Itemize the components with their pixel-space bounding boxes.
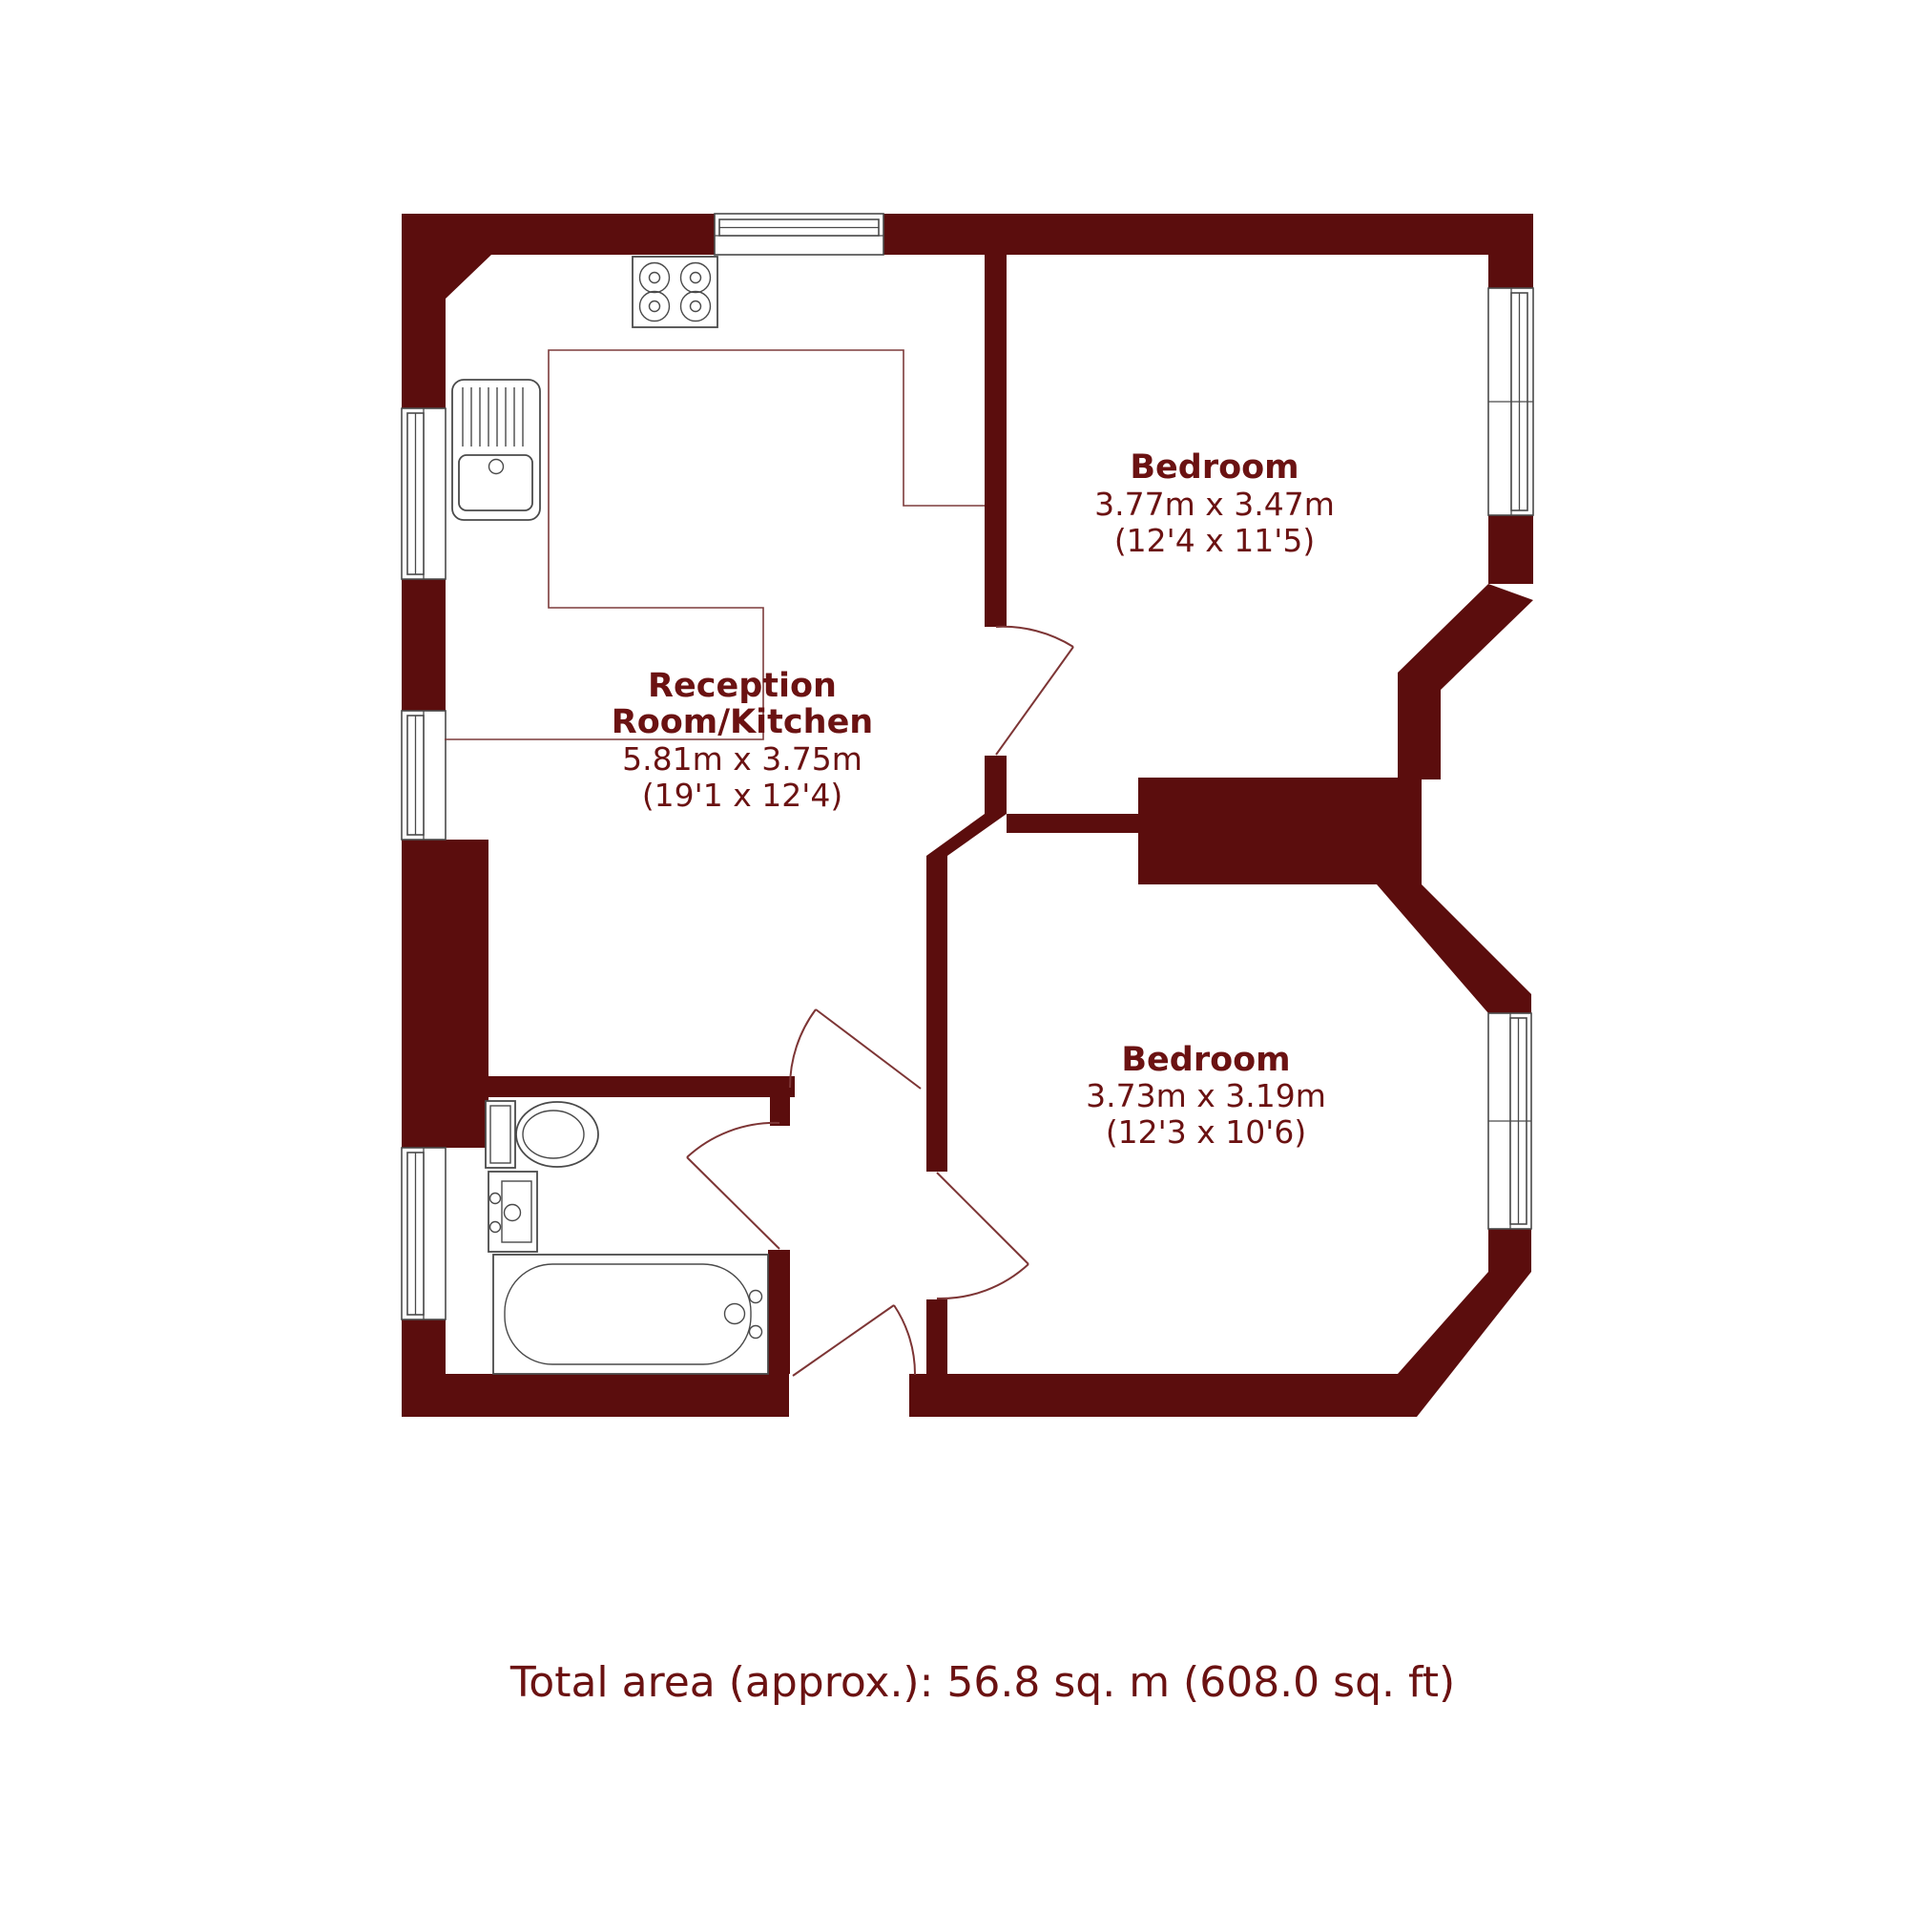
window-icon-left-b (402, 711, 446, 840)
room-label-reception-imperial: (19'1 x 12'4) (642, 777, 842, 814)
wall-layer (402, 214, 1533, 1417)
floorplan-svg: Bedroom 3.77m x 3.47m (12'4 x 11'5) Rece… (0, 0, 1932, 1932)
window-icon-left-c (402, 1148, 446, 1319)
door-bathroom (687, 1123, 779, 1249)
room-label-reception-name2: Room/Kitchen (612, 703, 873, 741)
toilet-icon (486, 1101, 598, 1168)
room-label-bedroom-bottom-imperial: (12'3 x 10'6) (1106, 1113, 1306, 1151)
room-label-reception-name1: Reception (648, 667, 837, 705)
window-icon-bay-top (1488, 288, 1533, 515)
room-label-bedroom-top-metric: 3.77m x 3.47m (1094, 486, 1335, 523)
room-label-bedroom-top-imperial: (12'4 x 11'5) (1114, 522, 1315, 559)
door-bedroom-bottom (937, 1173, 1028, 1298)
room-label-bedroom-bottom-name: Bedroom (1121, 1041, 1290, 1079)
floorplan-canvas: Bedroom 3.77m x 3.47m (12'4 x 11'5) Rece… (0, 0, 1932, 1932)
room-label-bedroom-bottom-metric: 3.73m x 3.19m (1086, 1077, 1326, 1114)
room-label-bedroom-top-name: Bedroom (1130, 448, 1298, 487)
room-label-reception-metric: 5.81m x 3.75m (622, 740, 862, 778)
door-bedroom-top (996, 627, 1073, 755)
fixture-layer (452, 257, 768, 1374)
door-reception (790, 1009, 921, 1089)
window-icon-left-a (402, 408, 446, 579)
window-icon-bay-bottom (1488, 1013, 1531, 1229)
bathroom-basin-icon (488, 1172, 537, 1252)
bathtub-icon (493, 1255, 768, 1374)
door-entrance (793, 1305, 915, 1376)
total-area-label: Total area (approx.): 56.8 sq. m (608.0 … (509, 1658, 1455, 1707)
wall-segments (402, 214, 1533, 1417)
window-icon-top (715, 214, 883, 255)
kitchen-sink-icon (452, 380, 540, 520)
hob-icon (633, 257, 717, 327)
